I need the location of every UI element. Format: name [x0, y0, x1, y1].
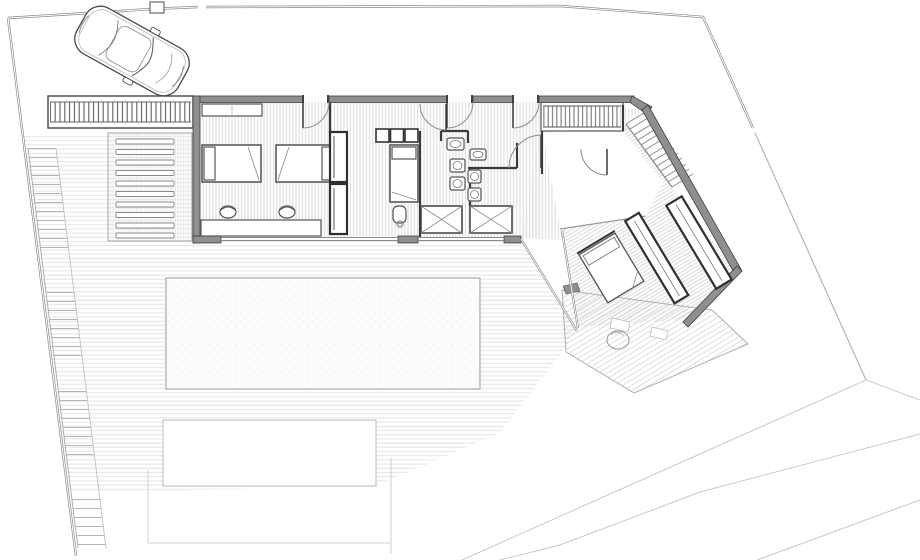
- wc: [468, 170, 481, 183]
- bidet: [450, 177, 465, 190]
- single-bed: [202, 145, 261, 182]
- desk: [201, 220, 321, 236]
- swimming-pool: [166, 278, 480, 389]
- pergola-slat-field: [50, 102, 191, 122]
- north-wall: [329, 96, 447, 103]
- contour-line: [500, 434, 920, 560]
- west-wall: [193, 96, 200, 243]
- gate-post: [150, 2, 164, 13]
- pergola-slats: [48, 96, 193, 128]
- shower: [421, 206, 462, 233]
- north-wall: [473, 96, 513, 103]
- louvered-steps: [108, 133, 192, 241]
- wardrobe: [330, 184, 347, 234]
- shower: [470, 206, 512, 233]
- slat-bridge: [541, 102, 623, 131]
- north-wall: [193, 96, 303, 103]
- floor-plan-stage: [0, 0, 920, 560]
- single-bed: [390, 145, 418, 202]
- washbasin: [447, 138, 464, 150]
- south-wall-pier: [398, 236, 418, 243]
- stool: [220, 206, 236, 218]
- parked-car: [66, 0, 198, 106]
- pool-basin: [166, 278, 480, 389]
- south-wall-pier: [504, 236, 521, 243]
- wc: [450, 159, 465, 172]
- contour-line: [757, 500, 920, 560]
- bridge-slats: [543, 106, 621, 127]
- contour-line: [462, 380, 866, 560]
- patio-slab: [163, 420, 376, 486]
- washbasin: [470, 149, 486, 160]
- terrace-deck: [562, 290, 748, 393]
- contour-line: [866, 380, 920, 400]
- floor-plan-drawing: [0, 0, 920, 560]
- bidet: [468, 188, 481, 201]
- south-wall-pier: [193, 236, 221, 243]
- north-wall-entry: [539, 96, 634, 103]
- single-bed: [276, 145, 335, 182]
- stool: [279, 206, 295, 218]
- terrain-contours: [462, 380, 920, 560]
- closet-cubbies: [376, 129, 418, 142]
- fence-line: [755, 133, 866, 380]
- car-body: [69, 0, 196, 102]
- wardrobe: [330, 132, 347, 182]
